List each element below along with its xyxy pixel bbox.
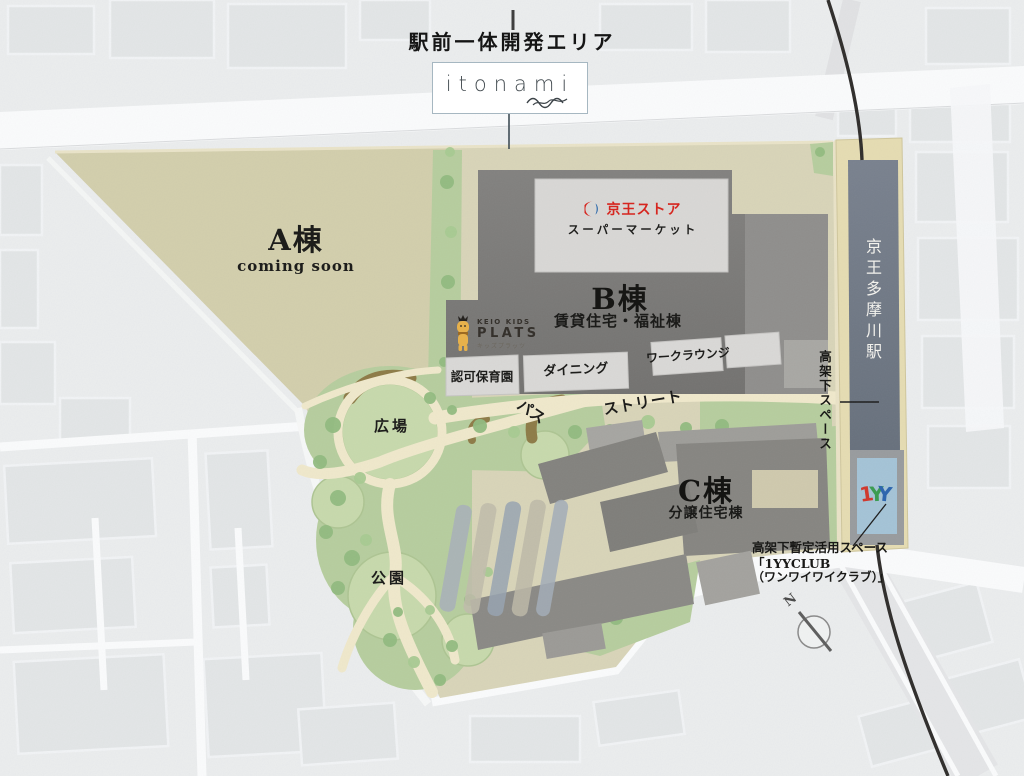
station-name: 京王多摩川駅 — [860, 238, 884, 364]
building-a-label: A棟 — [268, 225, 324, 257]
kids-plats-line3: キッズプラッツ — [477, 341, 540, 350]
under-viaduct-label: 高架下スペース — [815, 350, 834, 452]
map-canvas — [0, 0, 1024, 776]
kids-plats-logo: KEIO KIDS PLATS キッズプラッツ — [477, 318, 540, 350]
itonami-logo-box: itonami — [432, 62, 588, 114]
site-map: 駅前一体開発エリア itonami A棟 coming soon 京王ストア ス… — [0, 0, 1024, 776]
building-c-label: C棟 — [678, 476, 734, 508]
kids-plats-line1: KEIO KIDS — [477, 318, 540, 326]
annotation-line3: （ワンワイワイクラブ）」 — [752, 568, 890, 585]
texture-overlay — [0, 0, 1024, 776]
building-b-type: 賃貸住宅・福祉棟 — [554, 313, 682, 330]
one-yy-club-logo: 1 Y Y — [860, 482, 893, 506]
one-yy-char3: Y — [877, 481, 894, 506]
kids-plats-line2: PLATS — [477, 326, 540, 341]
area-title: 駅前一体開発エリア — [409, 31, 616, 53]
kids-mascot-icon — [454, 314, 472, 352]
building-c-type: 分譲住宅棟 — [669, 506, 744, 521]
supermarket-label: スーパーマーケット — [568, 224, 698, 237]
park-label: 公園 — [371, 570, 407, 587]
nursery-label: 認可保育園 — [451, 370, 514, 384]
keio-store-logo-icon — [585, 201, 602, 217]
itonami-logo-text: itonami — [446, 72, 574, 96]
keio-store-logo: 京王ストア — [585, 199, 682, 219]
itonami-wave-icon — [525, 94, 571, 110]
keio-store-name: 京王ストア — [607, 199, 682, 219]
building-a-status: coming soon — [237, 258, 355, 275]
plaza-label: 広場 — [374, 418, 410, 435]
